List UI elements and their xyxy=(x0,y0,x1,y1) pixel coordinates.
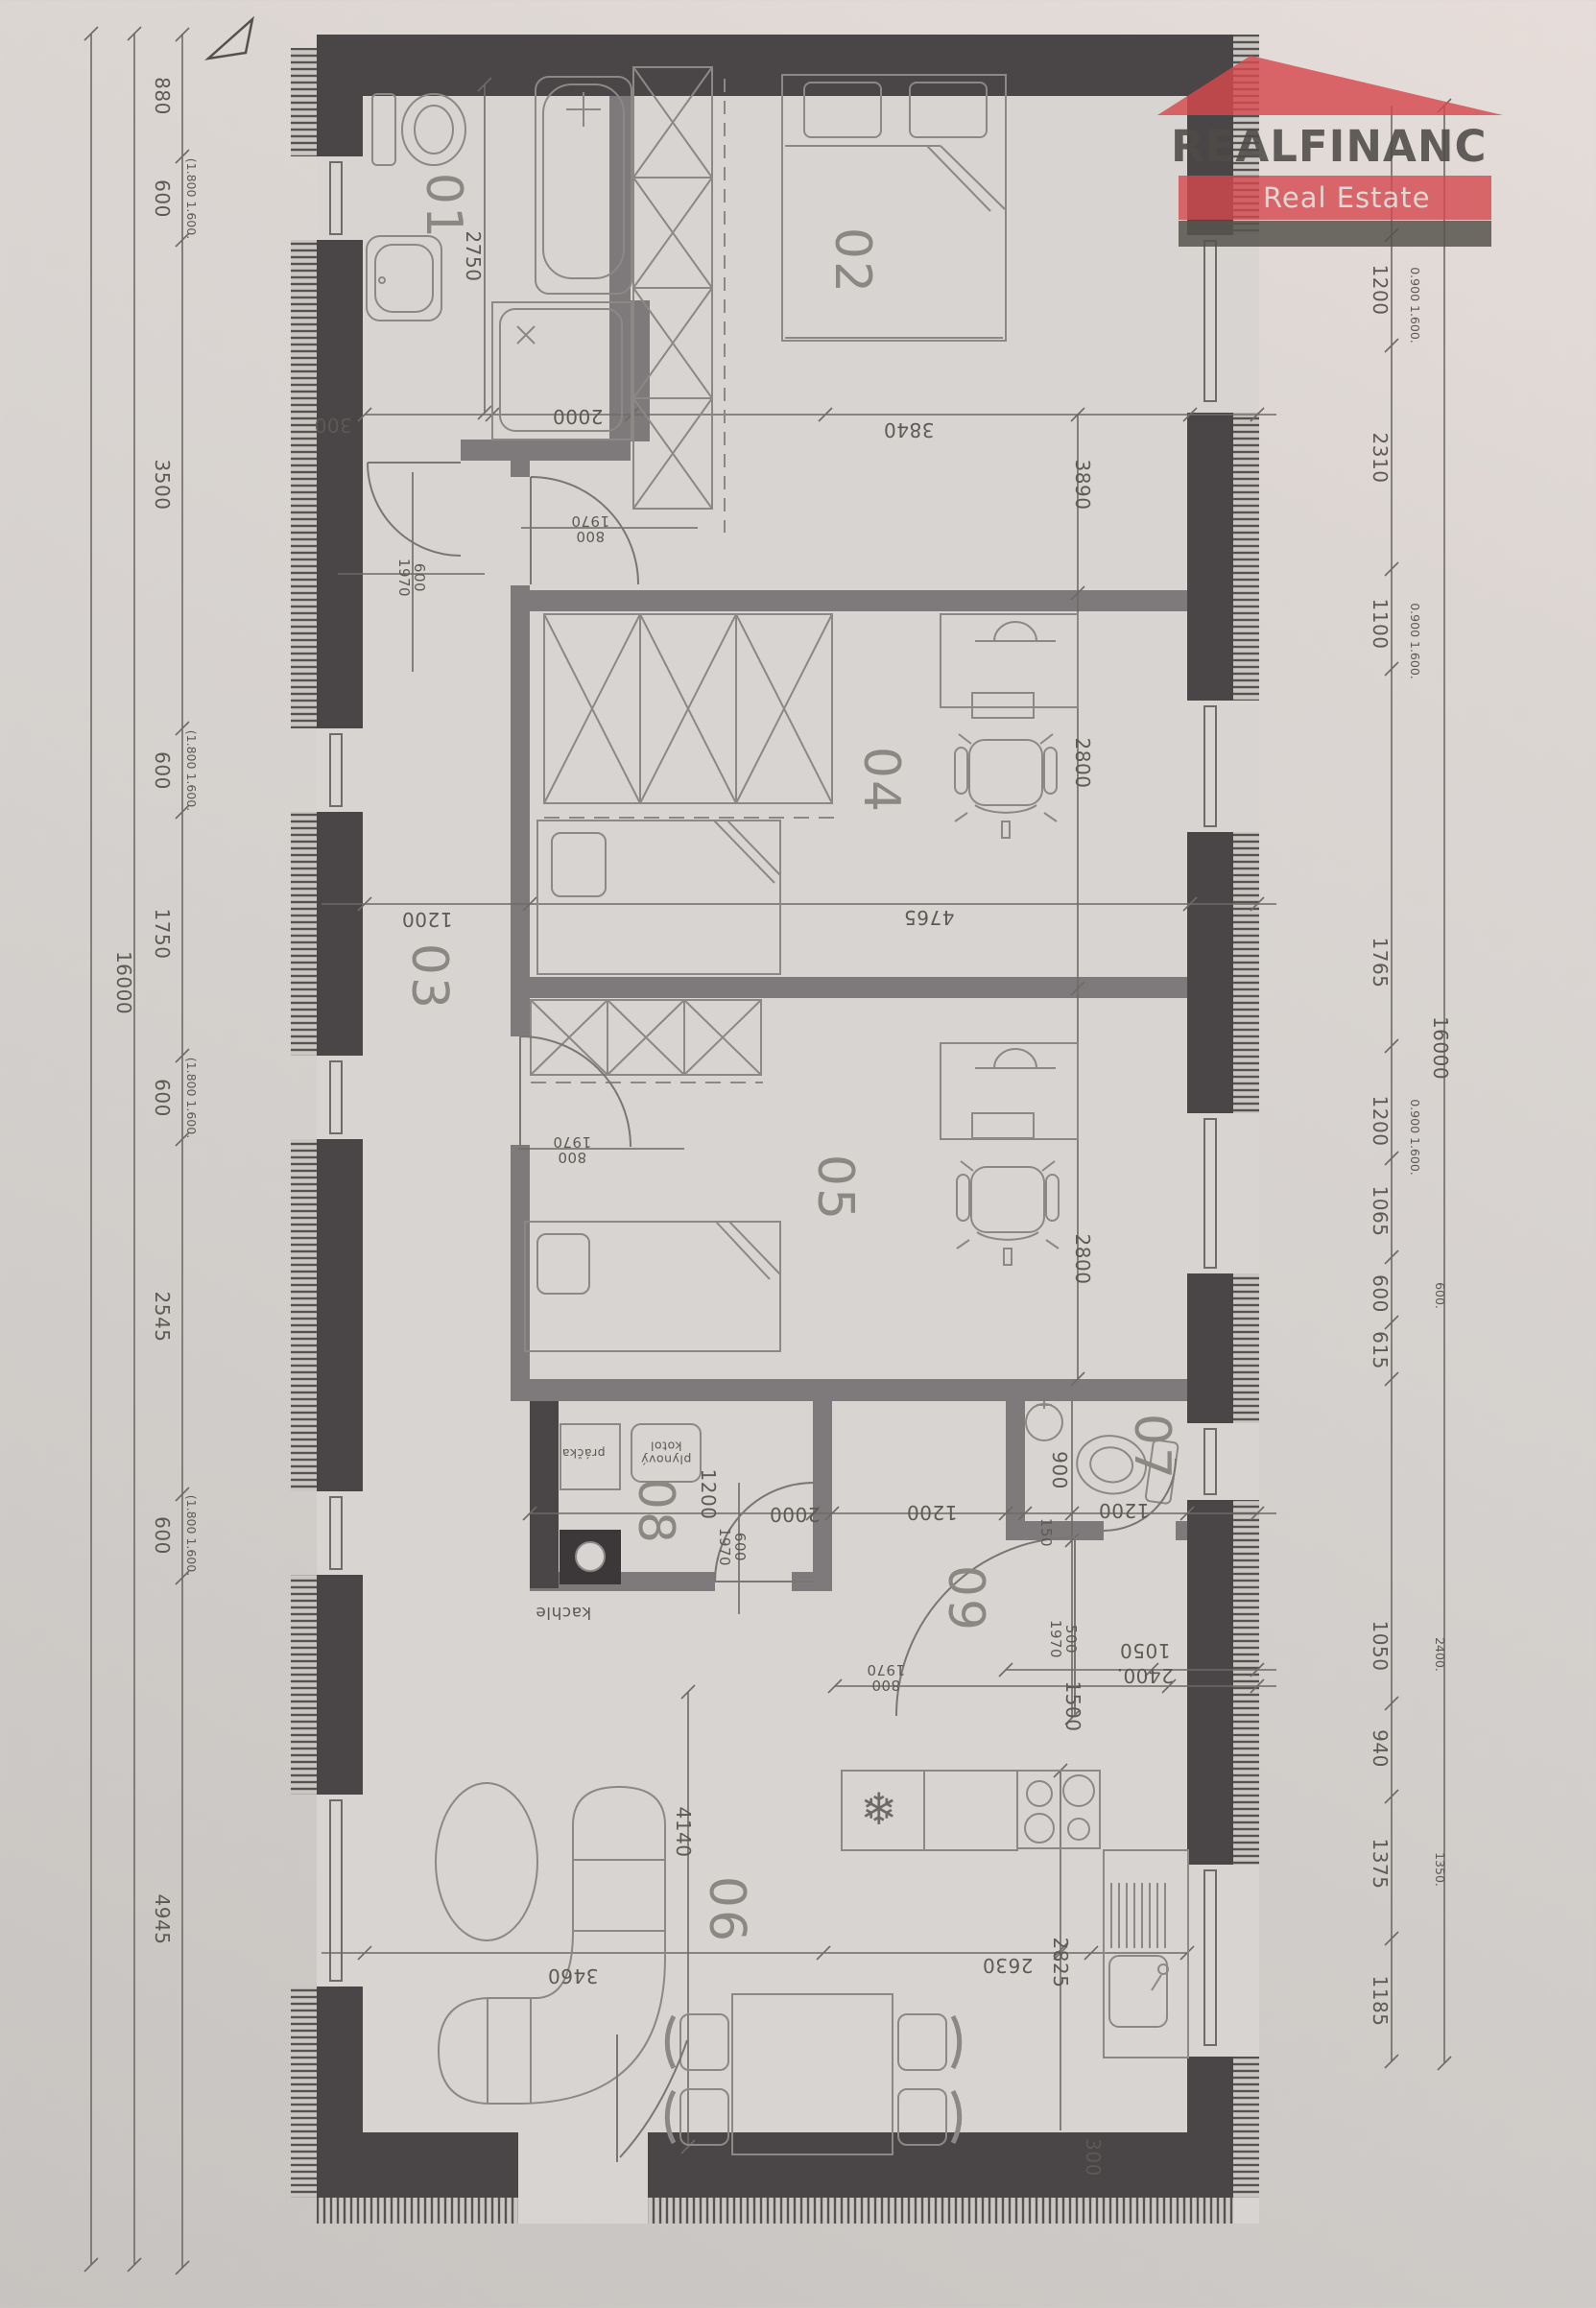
logo-title: REALFINANC xyxy=(1171,121,1497,172)
logo-subtitle: Real Estate xyxy=(1263,181,1431,214)
logo-roof-icon xyxy=(1157,56,1503,115)
north-arrow-icon xyxy=(208,19,252,59)
plan-interior xyxy=(317,35,1259,2224)
right-dimension-chain xyxy=(1385,99,1451,2070)
agency-logo: REALFINANC Real Estate xyxy=(1150,46,1596,257)
chimney-wall xyxy=(530,1401,559,1588)
left-dimension-chain xyxy=(84,27,189,2274)
stove-flue-symbol xyxy=(560,1530,621,1584)
logo-gray-band xyxy=(1179,221,1491,247)
logo-red-band: Real Estate xyxy=(1179,176,1491,220)
floorplan-scan: 2000384030012004765800 1970800 1970800 1… xyxy=(0,0,1596,2308)
floorplan-drawing xyxy=(0,0,1596,2308)
